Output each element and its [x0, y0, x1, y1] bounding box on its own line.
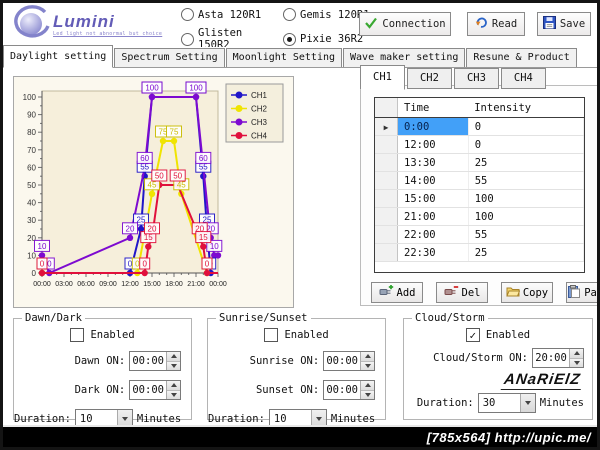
radio-icon: [181, 33, 194, 46]
sunrise-sunset-group: Sunrise/Sunset Enabled Sunrise ON: 00:00…: [207, 312, 386, 420]
checkbox-icon: [466, 328, 480, 342]
svg-text:70: 70: [27, 146, 36, 155]
time-cell[interactable]: 0:00: [398, 118, 469, 136]
check-icon: [364, 17, 378, 32]
svg-text:15:00: 15:00: [143, 281, 161, 288]
tab-daylight-setting[interactable]: Daylight setting: [3, 45, 113, 68]
svg-text:09:00: 09:00: [99, 281, 117, 288]
svg-text:CH2: CH2: [251, 105, 268, 114]
svg-text:60: 60: [199, 154, 208, 163]
add-plug-icon: [379, 285, 394, 300]
spin-down-icon[interactable]: [167, 391, 180, 400]
time-cell[interactable]: 13:30: [398, 154, 469, 172]
intensity-cell[interactable]: 100: [468, 190, 583, 208]
svg-text:06:00: 06:00: [77, 281, 95, 288]
dawn-on-label: Dawn ON:: [75, 355, 126, 367]
table-row[interactable]: 21:00100: [375, 208, 584, 226]
author-signature: ANaRiElZ: [500, 371, 583, 390]
selected-row-arrow-icon: ▶: [384, 123, 389, 132]
channel-tab-ch3[interactable]: CH3: [454, 68, 499, 89]
sunrise-on-label: Sunrise ON:: [250, 355, 320, 367]
svg-text:75: 75: [170, 128, 179, 137]
save-button[interactable]: Save: [537, 12, 591, 36]
top-buttons: Connection Read Save: [359, 12, 591, 36]
app-window: Lumini Led light not abnormal but choice…: [0, 0, 600, 450]
channel-tab-ch2[interactable]: CH2: [407, 68, 452, 89]
cloud-storm-on-label: Cloud/Storm ON:: [433, 352, 528, 364]
intensity-cell[interactable]: 25: [468, 154, 583, 172]
cloud-storm-on-time-spinner[interactable]: 20:00: [532, 348, 584, 368]
column-header-intensity: Intensity: [468, 98, 583, 118]
minutes-label: Minutes: [540, 397, 584, 409]
group-title: Sunrise/Sunset: [216, 312, 311, 324]
sunrise-on-time-spinner[interactable]: 00:00: [323, 351, 375, 371]
time-cell[interactable]: 12:00: [398, 136, 469, 154]
sunset-on-time-spinner[interactable]: 00:00: [323, 380, 375, 400]
logo-swirl-icon: [11, 5, 51, 45]
spin-up-icon[interactable]: [570, 349, 583, 359]
svg-text:CH1: CH1: [251, 91, 268, 100]
svg-text:CH4: CH4: [251, 132, 268, 141]
tab-moonlight-setting[interactable]: Moonlight Setting: [226, 48, 342, 67]
time-cell[interactable]: 15:00: [398, 190, 469, 208]
table-row[interactable]: 14:0055: [375, 172, 584, 190]
table-row[interactable]: 22:0055: [375, 226, 584, 244]
dawn-on-time-spinner[interactable]: 00:00: [129, 351, 181, 371]
add-button[interactable]: Add: [371, 282, 423, 303]
intensity-cell[interactable]: 100: [468, 208, 583, 226]
table-row[interactable]: 13:3025: [375, 154, 584, 172]
copy-button[interactable]: Copy: [501, 282, 553, 303]
watermark-text: [785x564] http://upic.me/: [427, 430, 591, 445]
daylight-setting-page: 010203040506070809010000:0003:0006:0009:…: [3, 68, 597, 424]
sunset-on-label: Sunset ON:: [256, 384, 319, 396]
dawn-dark-group: Dawn/Dark Enabled Dawn ON: 00:00 Dark ON…: [13, 312, 192, 420]
row-marker: [375, 136, 398, 154]
row-marker: [375, 154, 398, 172]
row-marker: [375, 244, 398, 262]
spin-up-icon[interactable]: [167, 352, 180, 362]
spin-up-icon[interactable]: [167, 381, 180, 391]
checkbox-icon: [264, 328, 278, 342]
intensity-cell[interactable]: 0: [468, 118, 583, 136]
intensity-cell[interactable]: 0: [468, 136, 583, 154]
spin-down-icon[interactable]: [361, 391, 374, 400]
table-row[interactable]: 12:000: [375, 136, 584, 154]
column-header-time: Time: [398, 98, 469, 118]
intensity-table[interactable]: TimeIntensity▶0:00012:00013:302514:00551…: [374, 97, 585, 273]
cloud-duration-select[interactable]: 30: [478, 393, 536, 413]
svg-text:03:00: 03:00: [55, 281, 73, 288]
table-row[interactable]: ▶0:000: [375, 118, 584, 136]
svg-text:30: 30: [27, 216, 36, 225]
svg-text:00:00: 00:00: [209, 281, 227, 288]
model-radio-group: Asta 120R1Gemis 120R1Glisten 150R2Pixie …: [181, 8, 370, 51]
svg-text:60: 60: [140, 154, 149, 163]
radio-label: Pixie 36R2: [300, 33, 363, 45]
svg-text:45: 45: [177, 180, 186, 189]
chevron-down-icon: [520, 394, 535, 412]
svg-text:00:00: 00:00: [33, 281, 51, 288]
read-button[interactable]: Read: [467, 12, 525, 36]
svg-text:40: 40: [27, 199, 36, 208]
svg-text:10: 10: [210, 242, 219, 251]
svg-text:21:00: 21:00: [187, 281, 205, 288]
minutes-label: Minutes: [137, 413, 181, 425]
svg-text:45: 45: [148, 180, 157, 189]
minutes-label: Minutes: [331, 413, 375, 425]
daylight-chart-panel: 010203040506070809010000:0003:0006:0009:…: [13, 76, 294, 308]
svg-text:20: 20: [148, 224, 157, 233]
svg-text:90: 90: [27, 111, 36, 120]
time-cell[interactable]: 22:30: [398, 244, 469, 262]
cloud-storm-enabled-checkbox[interactable]: Enabled: [404, 328, 592, 342]
spin-down-icon[interactable]: [167, 362, 180, 371]
svg-text:15: 15: [199, 233, 208, 242]
svg-text:60: 60: [27, 163, 36, 172]
channel-tab-ch1[interactable]: CH1: [360, 65, 405, 90]
table-row[interactable]: 15:00100: [375, 190, 584, 208]
channel-tab-ch4[interactable]: CH4: [501, 68, 546, 89]
svg-text:20: 20: [126, 224, 135, 233]
checkbox-icon: [70, 328, 84, 342]
row-marker: ▶: [375, 118, 398, 136]
time-cell[interactable]: 14:00: [398, 172, 469, 190]
row-marker: [375, 172, 398, 190]
radio-icon: [181, 8, 194, 21]
svg-text:12:00: 12:00: [121, 281, 139, 288]
time-cell[interactable]: 21:00: [398, 208, 469, 226]
radio-icon: [283, 33, 296, 46]
copy-folder-icon: [506, 285, 520, 300]
top-bar: Lumini Led light not abnormal but choice…: [3, 3, 597, 47]
cloud-storm-group: Cloud/Storm Enabled Cloud/Storm ON: 20:0…: [403, 312, 593, 420]
radio-label: Asta 120R1: [198, 9, 261, 21]
svg-text:0: 0: [205, 260, 210, 269]
svg-text:0: 0: [32, 269, 37, 278]
del-plug-icon: [444, 285, 459, 300]
channel-page: TimeIntensity▶0:00012:00013:302514:00551…: [360, 85, 598, 306]
spin-down-icon[interactable]: [570, 359, 583, 368]
duration-label: Duration:: [208, 413, 265, 425]
duration-label: Duration:: [14, 413, 71, 425]
group-title: Cloud/Storm: [412, 312, 488, 324]
svg-text:100: 100: [145, 84, 159, 93]
svg-text:10: 10: [38, 242, 47, 251]
table-row[interactable]: 22:3025: [375, 244, 584, 262]
del-button[interactable]: Del: [436, 282, 488, 303]
floppy-disk-icon: [543, 16, 556, 32]
row-marker-header: [375, 98, 398, 118]
paste-clipboard-icon: [568, 285, 581, 301]
intensity-cell[interactable]: 25: [468, 244, 583, 262]
spin-down-icon[interactable]: [361, 362, 374, 371]
brand-tagline: Led light not abnormal but choice: [53, 32, 162, 37]
time-cell[interactable]: 22:00: [398, 226, 469, 244]
row-marker: [375, 190, 398, 208]
svg-text:50: 50: [173, 172, 182, 181]
app-logo: Lumini Led light not abnormal but choice: [11, 5, 162, 45]
dawn-dark-enabled-checkbox[interactable]: Enabled: [14, 328, 191, 342]
intensity-cell[interactable]: 55: [468, 172, 583, 190]
intensity-cell[interactable]: 55: [468, 226, 583, 244]
radio-icon: [283, 8, 296, 21]
svg-text:50: 50: [27, 181, 36, 190]
svg-text:100: 100: [23, 93, 37, 102]
paste-button[interactable]: Paste: [566, 282, 600, 303]
brand-name: Lumini: [53, 13, 162, 30]
read-refresh-icon: [475, 16, 488, 32]
svg-text:10: 10: [27, 251, 36, 260]
row-marker: [375, 208, 398, 226]
svg-text:50: 50: [155, 172, 164, 181]
tab-spectrum-setting[interactable]: Spectrum Setting: [114, 48, 224, 67]
dark-on-label: Dark ON:: [75, 384, 126, 396]
svg-text:CH3: CH3: [251, 118, 268, 127]
svg-text:55: 55: [199, 163, 208, 172]
status-bar: [785x564] http://upic.me/: [3, 425, 597, 447]
model-radio-asta-120r1[interactable]: Asta 120R1: [181, 8, 279, 21]
svg-text:80: 80: [27, 128, 36, 137]
dark-on-time-spinner[interactable]: 00:00: [129, 380, 181, 400]
model-radio-gemis-120r1[interactable]: Gemis 120R1: [283, 8, 370, 21]
spin-up-icon[interactable]: [361, 381, 374, 391]
svg-text:100: 100: [189, 84, 203, 93]
duration-label: Duration:: [417, 397, 474, 409]
connection-button[interactable]: Connection: [359, 12, 451, 36]
sunrise-sunset-enabled-checkbox[interactable]: Enabled: [208, 328, 385, 342]
svg-text:55: 55: [140, 163, 149, 172]
svg-text:15: 15: [144, 233, 153, 242]
row-marker: [375, 226, 398, 244]
daylight-chart: 010203040506070809010000:0003:0006:0009:…: [14, 77, 291, 305]
table-header-row: TimeIntensity: [375, 98, 584, 118]
group-title: Dawn/Dark: [22, 312, 85, 324]
svg-text:0: 0: [40, 260, 45, 269]
svg-text:0: 0: [47, 260, 52, 269]
spin-up-icon[interactable]: [361, 352, 374, 362]
svg-text:18:00: 18:00: [165, 281, 183, 288]
table-buttons: AddDelCopyPaste: [371, 282, 600, 303]
channel-tab-strip: CH1CH2CH3CH4: [360, 65, 548, 90]
svg-text:0: 0: [142, 260, 147, 269]
